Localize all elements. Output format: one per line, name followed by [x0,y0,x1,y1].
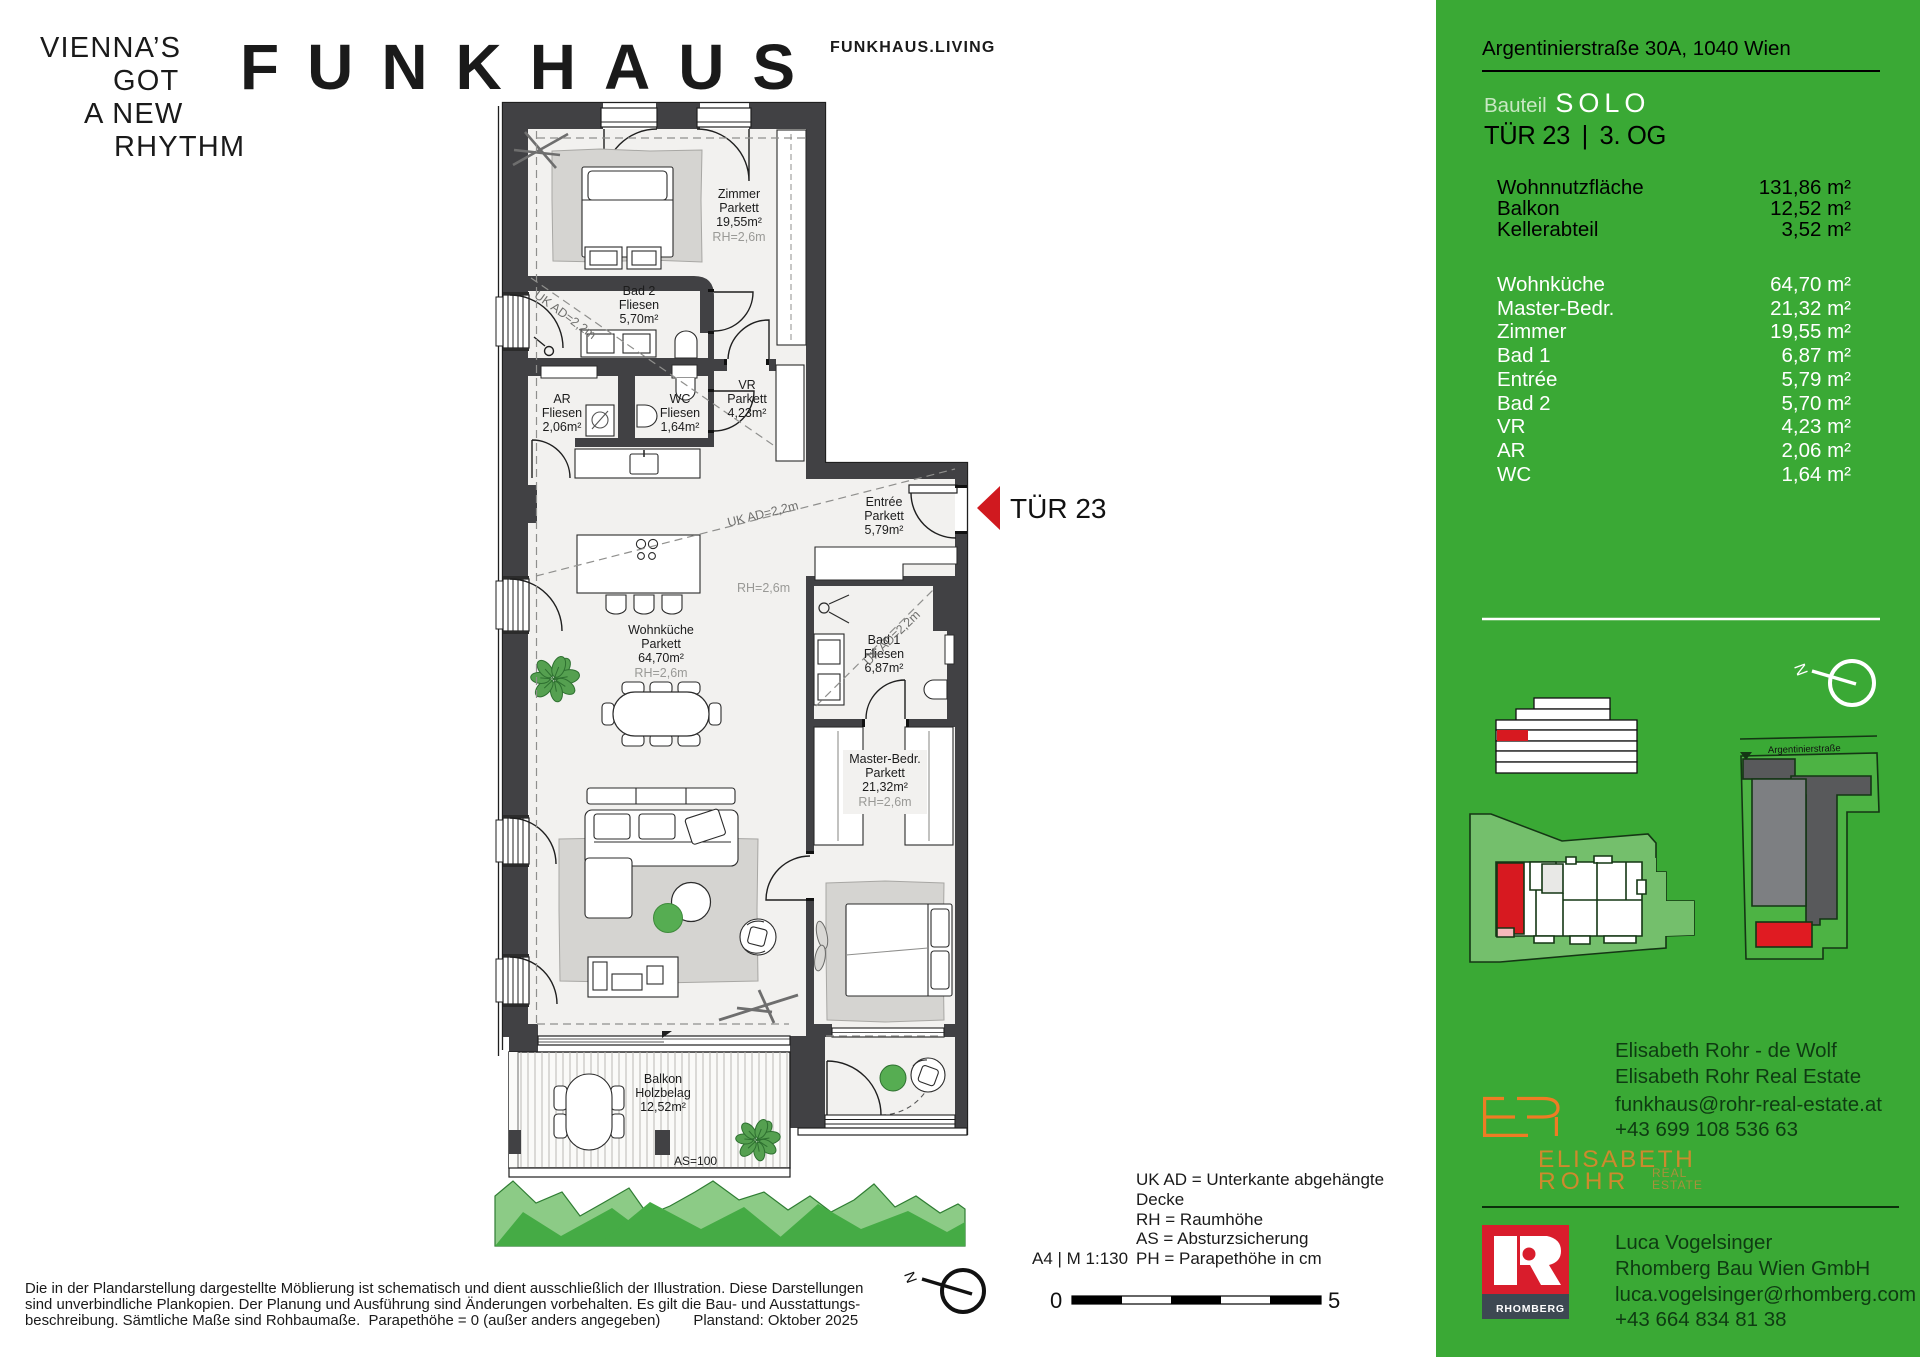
svg-text:Argentinierstraße: Argentinierstraße [1768,743,1841,756]
svg-text:RHOMBERG: RHOMBERG [1496,1303,1565,1315]
